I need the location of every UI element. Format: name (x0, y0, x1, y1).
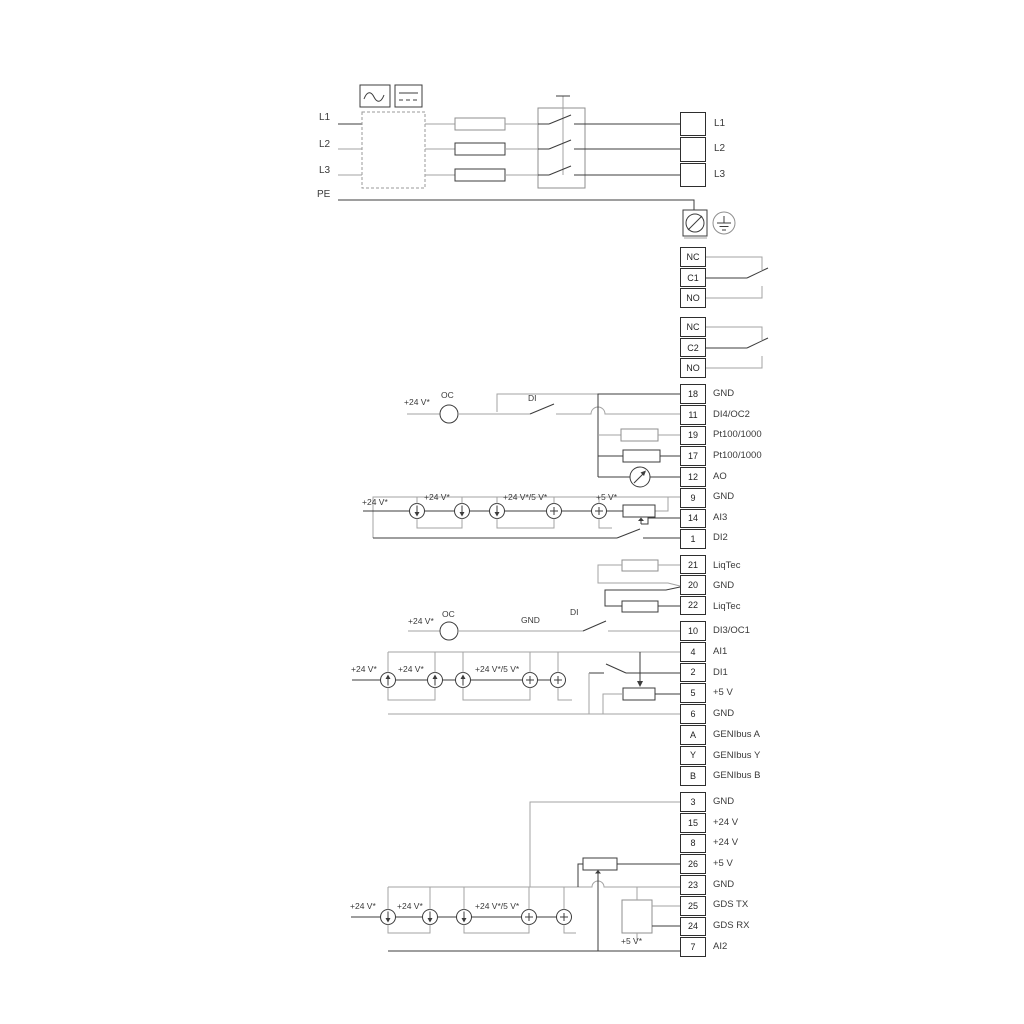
terminal-9: 9 (680, 488, 706, 508)
open-collector-label: OC (442, 609, 455, 620)
voltage-label: +24 V* (408, 616, 434, 627)
relay1-terminal-block: NC C1 NO (680, 247, 706, 308)
digital-input-label: DI (570, 607, 579, 618)
terminal-25-label: GDS TX (713, 899, 748, 910)
pe-screw-terminal (683, 210, 707, 238)
terminal-20-label: GND (713, 580, 734, 591)
voltage-label: +24 V* (424, 492, 450, 503)
input-label-pe: PE (317, 189, 330, 200)
terminal-22-label: LiqTec (713, 601, 740, 612)
output-label-l2: L2 (714, 143, 725, 154)
terminal-26: 26 (680, 854, 706, 874)
terminal-15-label: +24 V (713, 817, 738, 828)
voltage-label: +24 V* (397, 901, 423, 912)
mains-input-lines (338, 124, 362, 175)
terminal-24: 24 (680, 917, 706, 937)
terminal-8-label: +24 V (713, 837, 738, 848)
terminal-4: 4 (680, 642, 706, 662)
io-terminal-block-3: 3 15 8 26 23 25 24 7 (680, 792, 706, 957)
input-label-l1: L1 (319, 112, 330, 123)
fuses (425, 118, 538, 181)
relay1-contact (706, 257, 768, 298)
terminal-nc1: NC (680, 247, 706, 267)
open-collector-label: OC (441, 390, 454, 401)
voltage-label: +24 V* (398, 664, 424, 675)
terminal-11: 11 (680, 405, 706, 425)
terminal-no1: NO (680, 288, 706, 308)
di3-oc1-circuit (408, 621, 680, 640)
terminal-17: 17 (680, 446, 706, 466)
mains-output-terminal-block (680, 112, 706, 187)
io-terminal-block-1: 18 11 19 17 12 9 14 1 (680, 384, 706, 549)
terminal-out-l2 (680, 137, 706, 161)
terminal-17-label: Pt100/1000 (713, 450, 762, 461)
terminal-out-l1 (680, 112, 706, 136)
terminal-b: B (680, 766, 706, 786)
terminal-14: 14 (680, 509, 706, 529)
terminal-11-label: DI4/OC2 (713, 409, 750, 420)
terminal-b-label: GENIbus B (713, 770, 761, 781)
terminal-6: 6 (680, 704, 706, 724)
terminal-2-label: DI1 (713, 667, 728, 678)
voltage-label: +24 V* (404, 397, 430, 408)
voltage-label: +24 V* (351, 664, 377, 675)
terminal-y: Y (680, 746, 706, 766)
wiring-svg (0, 0, 1024, 1024)
ai3-circuit (363, 497, 680, 538)
output-label-l1: L1 (714, 118, 725, 129)
terminal-2: 2 (680, 663, 706, 683)
terminal-12-label: AO (713, 471, 727, 482)
voltage-label: +24 V*/5 V* (503, 492, 547, 503)
terminal-19-label: Pt100/1000 (713, 429, 762, 440)
terminal-23-label: GND (713, 879, 734, 890)
input-label-l3: L3 (319, 165, 330, 176)
io-terminal-block-2: 10 4 2 5 6 A Y B (680, 621, 706, 786)
voltage-label: +24 V* (362, 497, 388, 508)
drive-filter-box (362, 112, 425, 188)
terminal-7: 7 (680, 937, 706, 957)
ac-symbol-icon (360, 85, 390, 107)
terminal-a-label: GENIbus A (713, 729, 760, 740)
terminal-out-l3 (680, 163, 706, 187)
voltage-label: +5 V* (596, 492, 617, 503)
terminal-y-label: GENIbus Y (713, 750, 760, 761)
input-label-l2: L2 (319, 139, 330, 150)
terminal-no2: NO (680, 358, 706, 378)
ground-label: GND (521, 615, 540, 626)
terminal-c2: C2 (680, 338, 706, 358)
wiring-diagram-canvas: L1 L2 L3 PE L1 L2 L3 NC C1 NO NC C2 NO 1… (0, 0, 1024, 1024)
terminal-12: 12 (680, 467, 706, 487)
terminal-22: 22 (680, 596, 706, 615)
terminal-3-label: GND (713, 796, 734, 807)
main-switch (538, 96, 680, 188)
pt100-sensor-19 (598, 429, 680, 441)
terminal-20: 20 (680, 575, 706, 594)
ai1-di1-circuit (352, 652, 680, 714)
dc-symbol-icon (395, 85, 422, 107)
terminal-1-label: DI2 (713, 532, 728, 543)
liqtec-circuit (598, 560, 680, 612)
terminal-a: A (680, 725, 706, 745)
terminal-9-label: GND (713, 491, 734, 502)
terminal-10-label: DI3/OC1 (713, 625, 750, 636)
pt100-sensor-17 (598, 450, 680, 462)
terminal-21: 21 (680, 555, 706, 574)
analog-output-meter (598, 467, 680, 487)
terminal-10: 10 (680, 621, 706, 641)
terminal-25: 25 (680, 896, 706, 916)
terminal-21-label: LiqTec (713, 560, 740, 571)
digital-input-label: DI (528, 393, 537, 404)
gds-sensor-box (622, 887, 680, 940)
terminal-5: 5 (680, 683, 706, 703)
terminal-5-label: +5 V (713, 687, 733, 698)
terminal-c1: C1 (680, 268, 706, 288)
voltage-label: +24 V*/5 V* (475, 664, 519, 675)
terminal-15: 15 (680, 813, 706, 833)
terminal-26-label: +5 V (713, 858, 733, 869)
voltage-label: +5 V* (621, 936, 642, 947)
terminal-1: 1 (680, 529, 706, 549)
relay2-terminal-block: NC C2 NO (680, 317, 706, 378)
liqtec-terminal-block: 21 20 22 (680, 555, 706, 615)
terminal-3: 3 (680, 792, 706, 812)
terminal-4-label: AI1 (713, 646, 727, 657)
terminal-19: 19 (680, 426, 706, 446)
relay2-contact (706, 327, 768, 368)
terminal-18: 18 (680, 384, 706, 404)
terminal-8: 8 (680, 834, 706, 854)
pe-line (338, 200, 694, 210)
terminal-18-label: GND (713, 388, 734, 399)
voltage-label: +24 V* (350, 901, 376, 912)
terminal-7-label: AI2 (713, 941, 727, 952)
terminal-23: 23 (680, 875, 706, 895)
output-label-l3: L3 (714, 169, 725, 180)
terminal-24-label: GDS RX (713, 920, 749, 931)
earth-icon (713, 212, 735, 234)
terminal-nc2: NC (680, 317, 706, 337)
terminal-6-label: GND (713, 708, 734, 719)
terminal-14-label: AI3 (713, 512, 727, 523)
voltage-label: +24 V*/5 V* (475, 901, 519, 912)
